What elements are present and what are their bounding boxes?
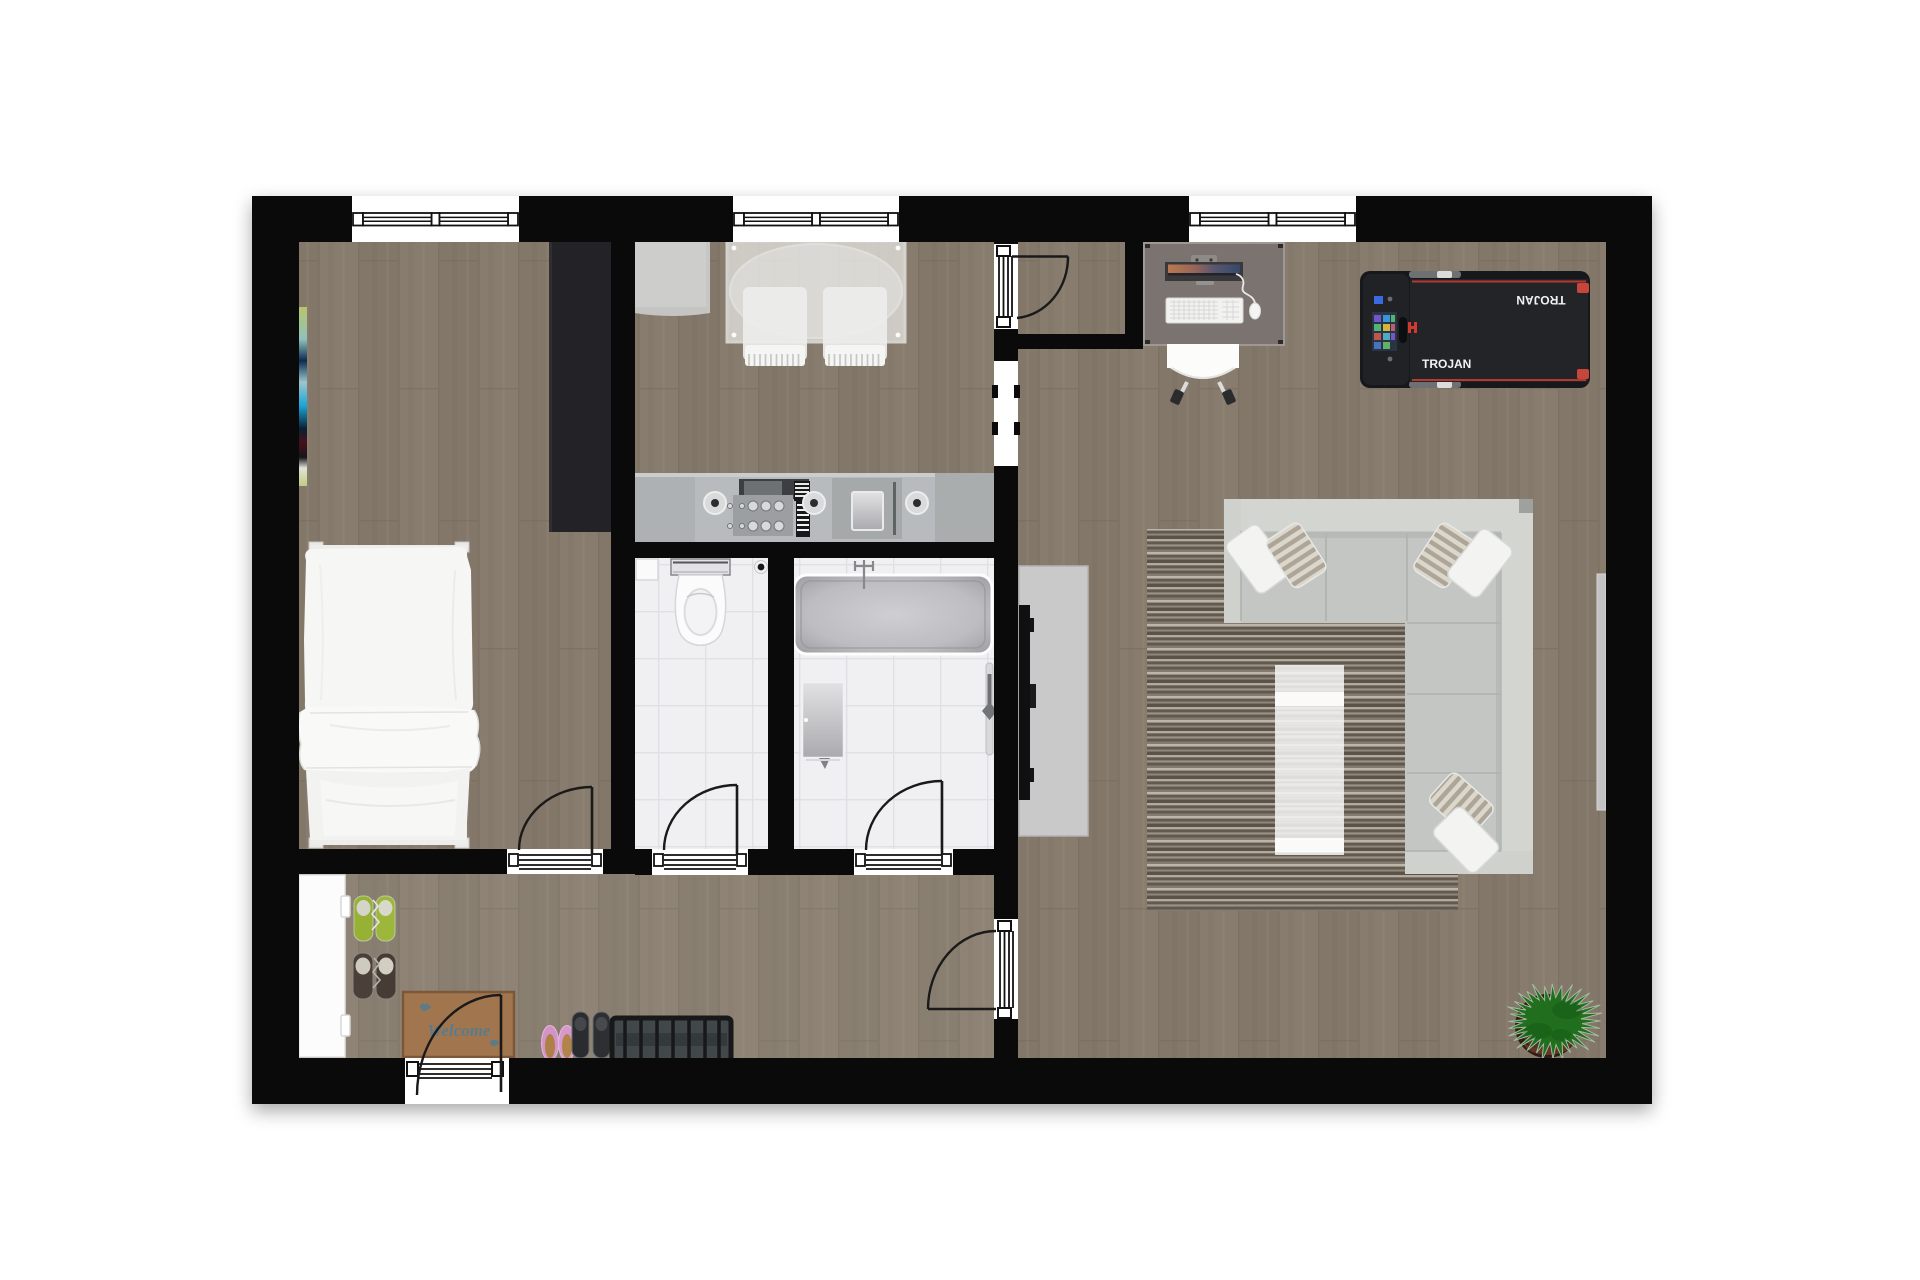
svg-text:TROJAN: TROJAN [1422,357,1471,371]
svg-text:TROJAN: TROJAN [1516,293,1565,307]
